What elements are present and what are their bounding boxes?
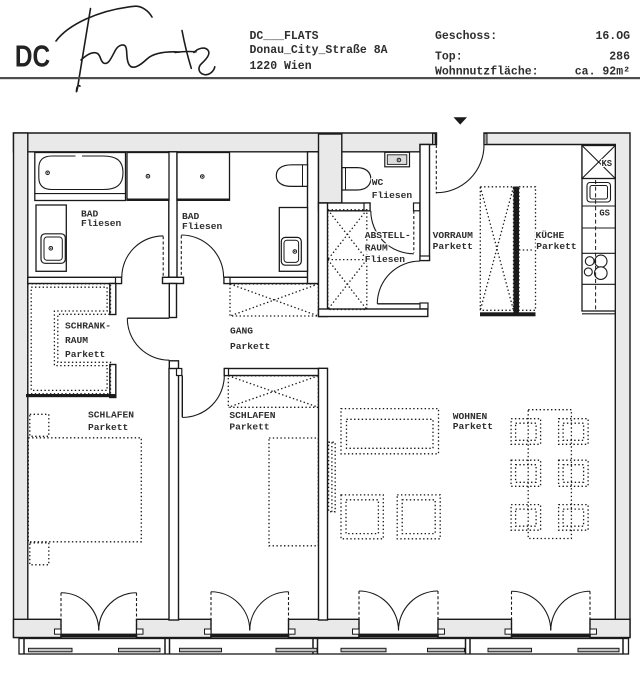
svg-text:Top:: Top:: [435, 51, 463, 64]
svg-text:ca. 92m²: ca. 92m²: [575, 66, 630, 79]
svg-text:Parkett: Parkett: [433, 241, 473, 252]
svg-text:286: 286: [609, 51, 630, 64]
svg-text:DC___FLATS: DC___FLATS: [250, 30, 319, 43]
svg-text:KS: KS: [602, 159, 613, 169]
svg-text:Donau_City_Straße 8A: Donau_City_Straße 8A: [250, 44, 388, 57]
svg-text:Parkett: Parkett: [88, 422, 128, 433]
svg-text:Parkett: Parkett: [229, 421, 269, 432]
svg-text:RAUM: RAUM: [65, 335, 88, 346]
svg-text:Wohnnutzfläche:: Wohnnutzfläche:: [435, 66, 539, 79]
svg-text:VORRAUM: VORRAUM: [433, 230, 474, 241]
svg-text:Parkett: Parkett: [453, 421, 493, 432]
svg-text:GS: GS: [599, 209, 610, 219]
svg-text:Parkett: Parkett: [230, 341, 270, 352]
svg-text:Fliesen: Fliesen: [372, 190, 413, 201]
svg-text:Fliesen: Fliesen: [365, 254, 406, 265]
svg-text:GANG: GANG: [230, 326, 253, 337]
svg-text:DC: DC: [15, 39, 50, 73]
svg-text:RAUM: RAUM: [365, 243, 388, 254]
svg-text:SCHLAFEN: SCHLAFEN: [229, 410, 275, 421]
svg-text:1220 Wien: 1220 Wien: [250, 60, 312, 73]
svg-text:16.OG: 16.OG: [595, 30, 630, 43]
svg-text:SCHRANK-: SCHRANK-: [65, 321, 111, 332]
svg-text:Geschoss:: Geschoss:: [435, 30, 497, 43]
svg-text:SCHLAFEN: SCHLAFEN: [88, 410, 134, 421]
svg-text:Fliesen: Fliesen: [81, 218, 122, 229]
svg-text:Parkett: Parkett: [65, 349, 105, 360]
svg-text:Parkett: Parkett: [536, 241, 576, 252]
svg-text:Fliesen: Fliesen: [182, 221, 223, 232]
svg-text:KÜCHE: KÜCHE: [536, 230, 565, 241]
svg-text:ABSTELL-: ABSTELL-: [365, 230, 411, 241]
svg-text:WC: WC: [372, 177, 384, 188]
